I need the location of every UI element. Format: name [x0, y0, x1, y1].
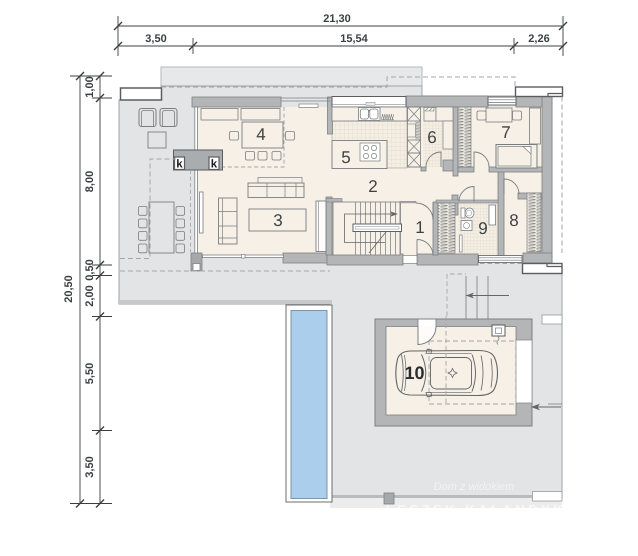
- svg-text:10: 10: [404, 363, 424, 383]
- svg-text:15,54: 15,54: [340, 33, 368, 45]
- svg-text:5: 5: [341, 148, 350, 167]
- svg-text:1: 1: [415, 218, 424, 237]
- svg-text:6: 6: [427, 128, 436, 147]
- svg-text:k: k: [211, 159, 218, 171]
- svg-text:21,30: 21,30: [323, 13, 351, 25]
- svg-text:8: 8: [509, 211, 518, 230]
- svg-text:4: 4: [256, 125, 265, 144]
- svg-text:k: k: [176, 159, 183, 171]
- svg-text:3,50: 3,50: [145, 33, 166, 45]
- svg-text:2,26: 2,26: [528, 33, 549, 45]
- svg-text:9: 9: [478, 219, 487, 238]
- svg-text:8,00: 8,00: [84, 171, 96, 192]
- svg-text:Dom z widokiem: Dom z widokiem: [434, 481, 515, 493]
- svg-text:3: 3: [273, 211, 282, 230]
- svg-text:0,50: 0,50: [84, 259, 96, 280]
- svg-text:2: 2: [368, 177, 377, 196]
- svg-text:3,50: 3,50: [84, 456, 96, 477]
- svg-text:7: 7: [501, 123, 510, 142]
- svg-text:LESZEK KALANDYK: LESZEK KALANDYK: [386, 502, 566, 517]
- svg-text:2,00: 2,00: [84, 285, 96, 306]
- svg-text:20,50: 20,50: [63, 275, 75, 303]
- svg-text:1,00: 1,00: [84, 76, 96, 97]
- svg-text:5,50: 5,50: [84, 363, 96, 384]
